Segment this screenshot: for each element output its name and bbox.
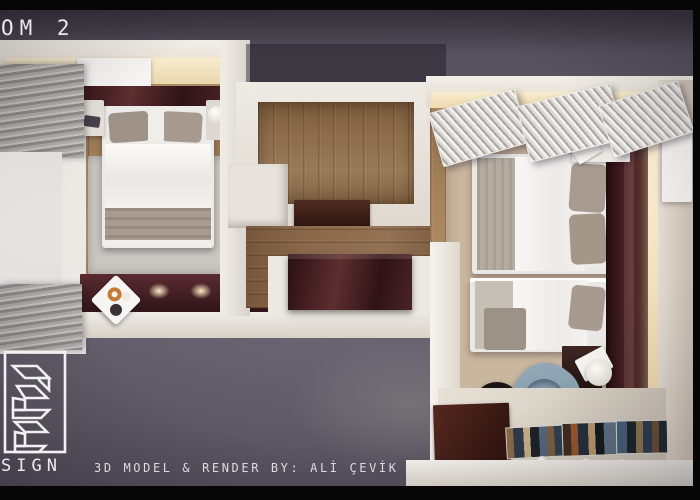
bed1-pillow-bottom <box>569 213 608 265</box>
bed-pillow-left <box>108 111 150 144</box>
minibar-cabinet <box>288 254 412 310</box>
studio-logo-text: SIGN <box>1 456 62 476</box>
teapot <box>108 301 125 318</box>
telephone <box>83 115 100 128</box>
bed1-pillow-top <box>568 163 607 213</box>
room-title: OM 2 <box>1 16 76 40</box>
bathroom-door <box>294 200 370 228</box>
twin-bed-2 <box>470 278 614 352</box>
bed2-pillow <box>568 284 606 331</box>
console-light-1 <box>144 280 174 302</box>
studio-logo <box>3 350 69 458</box>
mid-lamp <box>586 360 612 386</box>
bed-pillow-right <box>161 111 203 143</box>
bed-duvet <box>105 144 211 210</box>
entry-niche-wall <box>228 164 288 228</box>
headboard-gloss <box>624 126 634 406</box>
art-print-1 <box>505 425 565 460</box>
bed-blanket <box>105 208 211 242</box>
art-print-3 <box>616 420 669 455</box>
render-credit: 3D MODEL & RENDER BY: ALİ ÇEVİK <box>94 461 399 475</box>
letterbox-bottom <box>0 486 700 500</box>
twin-bed-1 <box>472 154 614 274</box>
curtain-bottom <box>0 284 82 350</box>
letterbox-top <box>0 0 700 10</box>
letterbox-right <box>693 0 700 500</box>
bottom-wall-right <box>406 460 694 486</box>
art-print-2 <box>561 421 618 457</box>
bed-foot-edge <box>105 240 211 246</box>
bed1-foot-blanket <box>477 158 515 270</box>
bed2-blanket-fold <box>484 308 526 350</box>
cabinet-top-highlight <box>288 254 412 259</box>
bed-pillow-center <box>148 110 164 142</box>
desk-dark-panel <box>433 403 511 468</box>
console-front-face <box>64 312 290 338</box>
double-bed <box>102 106 214 248</box>
floorplan-render: OM 2 SIGN 3D MODEL & RENDER BY: ALİ ÇEVİ… <box>0 0 700 500</box>
console-light-2 <box>186 280 216 302</box>
wardrobe-shelf <box>77 58 151 87</box>
curtain-top <box>0 64 84 158</box>
sheer-curtain <box>0 152 62 288</box>
